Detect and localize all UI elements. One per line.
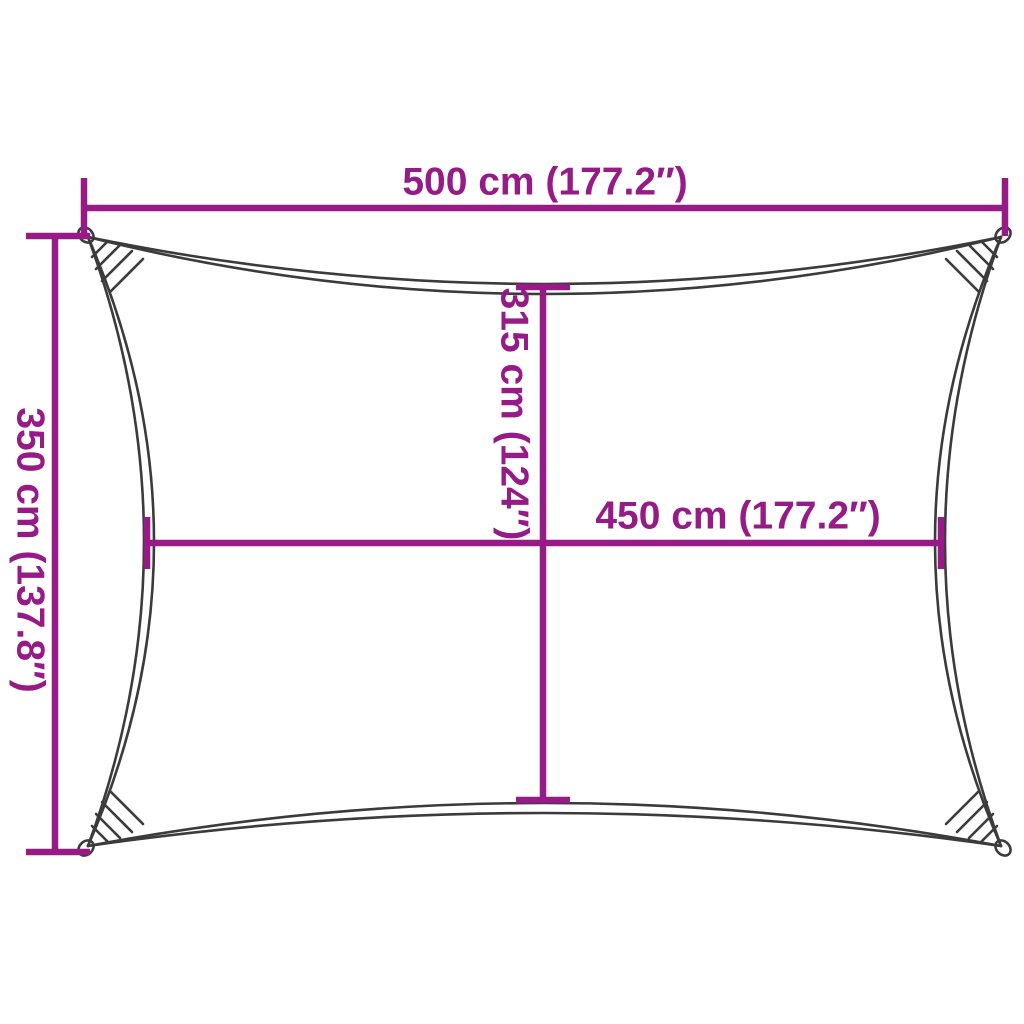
corner-ring-bottom-left-icon	[75, 791, 143, 859]
left-height-label: 350 cm (137.8″)	[11, 407, 50, 692]
center-width-label: 450 cm (177.2″)	[595, 497, 880, 536]
sail-edge-right-outer	[945, 237, 1001, 846]
sail-edge-bottom-outer	[88, 803, 1001, 846]
top-width-label: 500 cm (177.2″)	[402, 163, 687, 202]
sail-edge-bottom-inner	[88, 813, 1001, 846]
corner-ring-bottom-right-icon	[946, 791, 1014, 859]
sail-edge-left-outer	[88, 237, 144, 846]
center-height-label: 315 cm (124″)	[495, 288, 534, 541]
sail-edge-top-outer	[88, 237, 1001, 284]
shade-sail-dimension-diagram: 500 cm (177.2″) 350 cm (137.8″) 315 cm (…	[0, 0, 1024, 1024]
